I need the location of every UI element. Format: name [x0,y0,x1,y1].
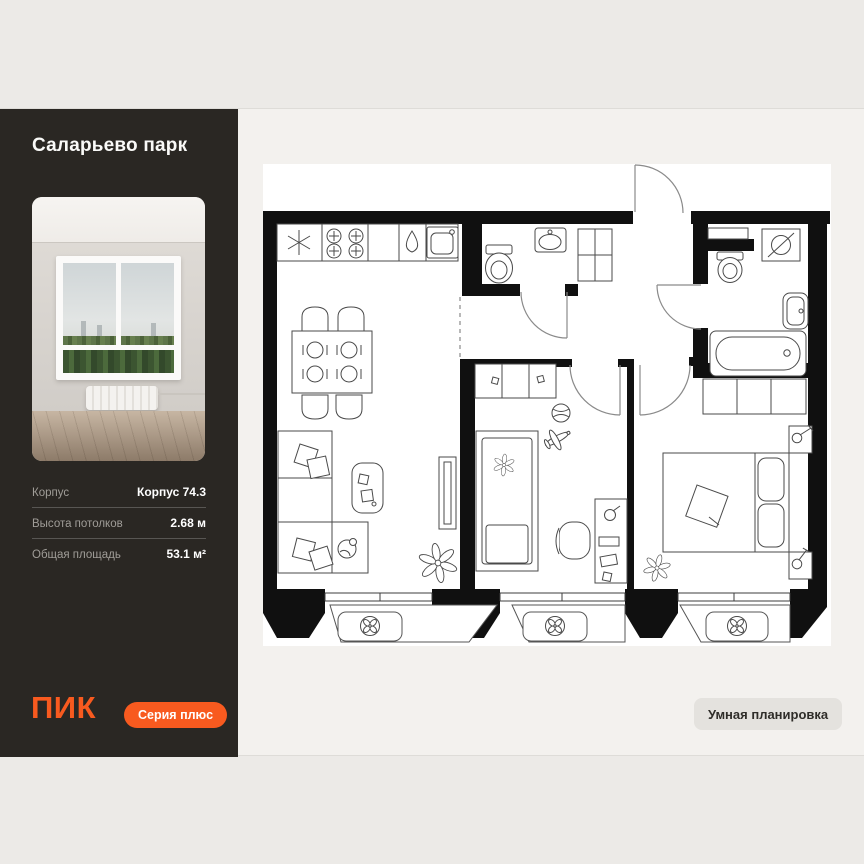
spec-label: Общая площадь [32,549,121,561]
smart-layout-badge[interactable]: Умная планировка [694,698,842,730]
bedroom-2 [640,379,813,584]
toy-plane [540,422,575,454]
toilet-icon [486,245,513,283]
spec-label: Корпус [32,487,69,499]
content-area: Саларьево парк [0,108,864,756]
ac-fan-icon [546,617,565,636]
bedroom-1 [475,364,627,583]
tv [439,457,456,529]
pik-logo: ПИК [31,692,96,723]
single-bed [476,431,538,571]
listing-card: Саларьево парк [0,0,864,864]
kitchen [277,224,458,261]
desk-chair [556,522,590,559]
window [56,256,181,380]
living-room [278,431,463,588]
bathroom-door [657,285,701,329]
hall-closet [578,229,612,281]
ball [552,404,570,422]
bathroom-shelf [708,228,748,239]
wardrobe [703,379,806,414]
walls [263,211,830,638]
spec-value: 2.68 м [170,516,206,530]
ac-fan-icon [361,617,380,636]
wc [486,228,613,283]
spec-value: Корпус 74.3 [137,485,206,499]
series-plus-badge[interactable]: Серия плюс [124,702,227,728]
wood-floor [32,411,205,461]
windows [325,593,790,601]
window-pane-right [121,263,174,345]
treeline [121,336,174,345]
double-bed [663,453,789,552]
sidebar: Саларьево парк [0,109,238,757]
dining-table [292,307,372,419]
plant-icon [413,538,463,587]
coffee-table [352,463,383,513]
washing-machine-icon [762,229,800,261]
spec-value: 53.1 м² [166,547,206,561]
spec-row-total-area: Общая площадь 53.1 м² [32,539,206,569]
bedroom1-door [570,365,620,415]
spec-label: Высота потолков [32,518,123,530]
washbasin-icon [535,228,566,252]
treeline [63,336,116,345]
kitchen-sink-icon [427,227,458,258]
desk [595,499,627,583]
toilet-icon [717,252,743,283]
radiator [86,386,158,410]
radiator-pipe [158,393,205,395]
window-transom-trees [63,350,174,373]
floor-plan [263,164,831,646]
photo-ceiling [32,197,205,243]
room-photo [32,197,205,461]
spec-row-ceiling-height: Высота потолков 2.68 м [32,508,206,539]
plant-icon [640,552,673,584]
washbasin-icon [783,293,808,329]
skyline-building [81,321,86,337]
ac-fan-icon [728,617,747,636]
entrance-door [635,165,683,213]
window-pane-left [63,263,116,345]
bedroom2-door [640,365,690,415]
spec-list: Корпус Корпус 74.3 Высота потолков 2.68 … [32,477,206,569]
wc-door [521,292,567,338]
project-title: Саларьево парк [32,135,187,157]
skyline-building [151,323,156,337]
balconies [330,605,790,642]
wardrobe [475,364,556,398]
spec-row-korpus: Корпус Корпус 74.3 [32,477,206,508]
window-panes [63,263,174,345]
bathtub-icon [710,331,806,376]
